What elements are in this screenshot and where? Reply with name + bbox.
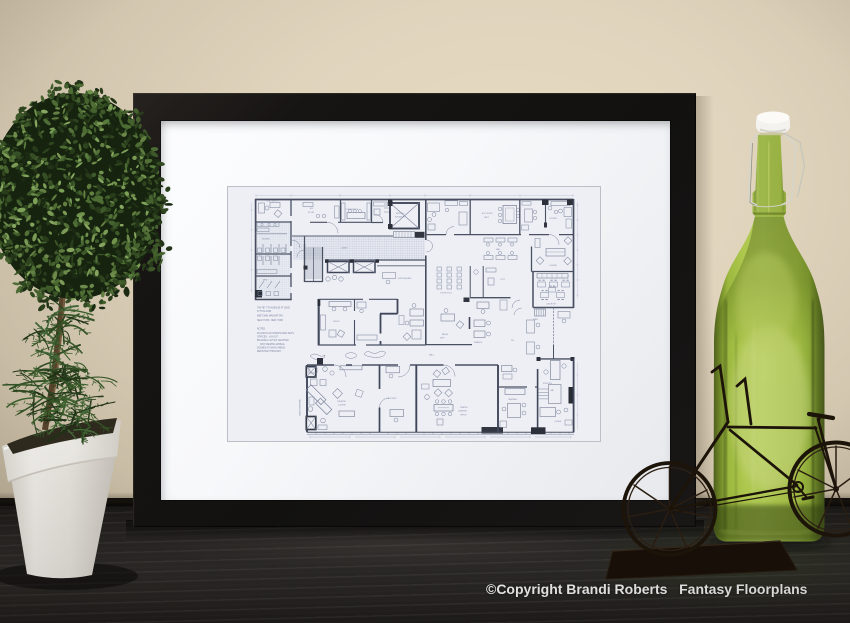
svg-text:LOUNGE: LOUNGE [338, 405, 346, 407]
svg-text:ACCOUNTS: ACCOUNTS [482, 212, 493, 215]
svg-text:LOBBY: LOBBY [341, 248, 348, 250]
svg-text:SCENES AT MANY AREAS: SCENES AT MANY AREAS [257, 346, 286, 349]
svg-text:OFFICE: OFFICE [333, 321, 340, 323]
svg-text:OFFICES - LAYOUT: OFFICES - LAYOUT [257, 336, 279, 339]
svg-text:MEN: MEN [263, 280, 268, 282]
svg-text:COOPER: COOPER [549, 218, 557, 220]
svg-text:STAIR: STAIR [533, 318, 539, 321]
svg-text:ELEVATOR: ELEVATOR [395, 216, 405, 219]
svg-text:BUILDING LAYOUT ADAPTED: BUILDING LAYOUT ADAPTED [257, 339, 289, 342]
svg-text:CREATIVE: CREATIVE [337, 400, 347, 403]
svg-text:FINANCE: FINANCE [474, 341, 483, 344]
svg-text:LOUNGE: LOUNGE [549, 265, 557, 267]
svg-text:ART DEPT: ART DEPT [388, 397, 398, 400]
svg-text:COAT SUPPLY: COAT SUPPLY [266, 200, 280, 203]
svg-text:LUNCH RM: LUNCH RM [546, 304, 556, 306]
svg-text:NOTES:: NOTES: [257, 329, 266, 331]
svg-text:HALL: HALL [429, 354, 435, 357]
svg-text:FOR VIEWING APPEAL: FOR VIEWING APPEAL [260, 343, 286, 346]
svg-text:MEDIA: MEDIA [442, 333, 448, 336]
svg-text:DEPT: DEPT [484, 217, 490, 219]
svg-text:CREATIVE: CREATIVE [458, 410, 468, 413]
svg-text:FLOOR PLAN SHOWS MAIN SETS: FLOOR PLAN SHOWS MAIN SETS [257, 332, 294, 335]
svg-text:OFFICE: OFFICE [460, 414, 467, 416]
svg-text:CONFERENCE: CONFERENCE [345, 209, 359, 211]
svg-text:TYPING POOL: TYPING POOL [440, 293, 452, 295]
svg-text:SWITCHBOARD: SWITCHBOARD [398, 277, 412, 280]
svg-text:WOMEN: WOMEN [262, 239, 270, 241]
svg-text:DRAPER: DRAPER [460, 406, 468, 409]
svg-text:37TH FLOOR: 37TH FLOOR [257, 311, 272, 313]
svg-text:DEPICTED THROUGH: DEPICTED THROUGH [257, 351, 281, 353]
svg-text:SERVICE: SERVICE [396, 213, 405, 215]
svg-text:NEW YORK, NEW YORK: NEW YORK, NEW YORK [257, 320, 284, 322]
svg-text:MIDTOWN MANHATTAN: MIDTOWN MANHATTAN [257, 315, 283, 318]
svg-text:HALL: HALL [496, 248, 501, 251]
svg-text:COPY: COPY [500, 279, 506, 281]
svg-text:749-787 7TH AVENUE AT 52ND: 749-787 7TH AVENUE AT 52ND [257, 307, 290, 310]
svg-text:CAMPBELL: CAMPBELL [508, 398, 518, 401]
svg-text:MADISON AVENUE: MADISON AVENUE [299, 398, 302, 416]
svg-text:LOUNGE: LOUNGE [554, 421, 562, 423]
svg-text:ROOM: ROOM [308, 212, 314, 214]
